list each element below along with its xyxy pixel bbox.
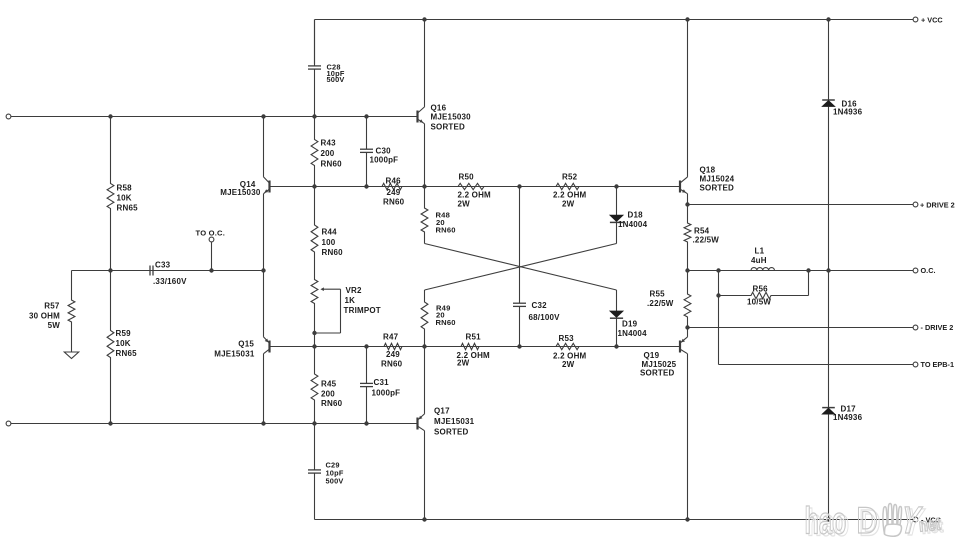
svg-text:TO O.C.: TO O.C. bbox=[196, 229, 226, 238]
svg-text:- DRIVE 2: - DRIVE 2 bbox=[921, 323, 954, 332]
svg-text:RN60: RN60 bbox=[321, 399, 343, 408]
svg-text:249: 249 bbox=[386, 350, 400, 359]
svg-text:SORTED: SORTED bbox=[434, 428, 469, 437]
svg-text:SORTED: SORTED bbox=[431, 123, 466, 132]
svg-text:1N4936: 1N4936 bbox=[833, 413, 863, 422]
svg-text:249: 249 bbox=[387, 188, 401, 197]
svg-text:30 OHM: 30 OHM bbox=[29, 312, 60, 321]
svg-text:4uH: 4uH bbox=[751, 256, 767, 265]
svg-text:RN65: RN65 bbox=[117, 204, 139, 213]
svg-text:R43: R43 bbox=[321, 139, 337, 148]
svg-text:D19: D19 bbox=[622, 320, 638, 329]
svg-text:.33/160V: .33/160V bbox=[153, 277, 187, 286]
svg-text:200: 200 bbox=[321, 149, 335, 158]
svg-text:R56: R56 bbox=[753, 284, 769, 293]
svg-text:Q17: Q17 bbox=[434, 407, 450, 416]
svg-text:68/100V: 68/100V bbox=[529, 313, 561, 322]
svg-text:L1: L1 bbox=[755, 247, 765, 256]
svg-text:2W: 2W bbox=[562, 360, 575, 369]
svg-text:RN60: RN60 bbox=[436, 318, 456, 327]
svg-text:2W: 2W bbox=[457, 359, 470, 368]
svg-text:SORTED: SORTED bbox=[640, 369, 675, 378]
svg-text:R57: R57 bbox=[44, 302, 60, 311]
svg-text:.22/5W: .22/5W bbox=[693, 236, 720, 245]
svg-text:2.2 OHM: 2.2 OHM bbox=[458, 191, 492, 200]
svg-text:D18: D18 bbox=[628, 211, 644, 220]
svg-text:2W: 2W bbox=[562, 200, 575, 209]
svg-text:D: D bbox=[857, 501, 878, 542]
svg-text:SORTED: SORTED bbox=[700, 184, 735, 193]
svg-text:RN60: RN60 bbox=[321, 160, 343, 169]
svg-text:hao: hao bbox=[805, 499, 847, 542]
svg-text:C30: C30 bbox=[376, 147, 392, 156]
svg-text:10/5W: 10/5W bbox=[747, 298, 771, 307]
svg-text:RN60: RN60 bbox=[383, 198, 405, 207]
svg-text:500V: 500V bbox=[327, 75, 345, 84]
svg-text:C33: C33 bbox=[155, 261, 171, 270]
svg-text:RN60: RN60 bbox=[381, 360, 403, 369]
svg-text:2W: 2W bbox=[458, 200, 471, 209]
svg-text:R58: R58 bbox=[117, 184, 133, 193]
svg-text:500V: 500V bbox=[326, 477, 344, 486]
svg-text:R46: R46 bbox=[386, 177, 402, 186]
svg-text:+ DRIVE 2: + DRIVE 2 bbox=[920, 201, 955, 210]
svg-text:Q15: Q15 bbox=[238, 340, 254, 349]
svg-text:TRIMPOT: TRIMPOT bbox=[344, 306, 381, 315]
svg-text:C31: C31 bbox=[374, 378, 390, 387]
svg-text:+ VCC: + VCC bbox=[921, 15, 943, 24]
svg-text:.22/5W: .22/5W bbox=[647, 299, 674, 308]
svg-text:R44: R44 bbox=[322, 228, 338, 237]
svg-text:1000pF: 1000pF bbox=[370, 156, 399, 165]
svg-text:10K: 10K bbox=[117, 194, 132, 203]
svg-text:1K: 1K bbox=[345, 296, 356, 305]
svg-text:Q18: Q18 bbox=[700, 166, 716, 175]
svg-text:VR2: VR2 bbox=[346, 286, 363, 295]
svg-text:Q16: Q16 bbox=[431, 104, 447, 113]
svg-text:RN65: RN65 bbox=[116, 349, 138, 358]
svg-text:MJ15024: MJ15024 bbox=[700, 175, 735, 184]
svg-text:net: net bbox=[918, 514, 942, 536]
svg-text:Q19: Q19 bbox=[644, 351, 660, 360]
svg-text:R52: R52 bbox=[562, 173, 578, 182]
svg-text:MJE15030: MJE15030 bbox=[431, 113, 472, 122]
svg-text:RN60: RN60 bbox=[322, 248, 344, 257]
svg-text:C32: C32 bbox=[532, 301, 548, 310]
svg-text:5W: 5W bbox=[48, 321, 61, 330]
svg-text:R47: R47 bbox=[383, 333, 399, 342]
svg-text:TO EPB-1: TO EPB-1 bbox=[921, 360, 955, 369]
svg-text:R54: R54 bbox=[694, 227, 710, 236]
svg-text:RN60: RN60 bbox=[436, 226, 456, 235]
svg-text:2.2 OHM: 2.2 OHM bbox=[553, 191, 587, 200]
svg-text:1000pF: 1000pF bbox=[372, 389, 401, 398]
svg-text:O.C.: O.C. bbox=[921, 266, 936, 275]
svg-text:MJE15031: MJE15031 bbox=[214, 350, 255, 359]
svg-text:1N4936: 1N4936 bbox=[833, 108, 863, 117]
svg-text:R45: R45 bbox=[321, 380, 337, 389]
svg-text:R55: R55 bbox=[650, 290, 666, 299]
svg-text:MJE15030: MJE15030 bbox=[220, 188, 261, 197]
svg-text:10K: 10K bbox=[116, 339, 131, 348]
svg-text:R51: R51 bbox=[466, 333, 482, 342]
svg-text:1N4004: 1N4004 bbox=[618, 329, 648, 338]
svg-text:1N4004: 1N4004 bbox=[618, 220, 648, 229]
svg-text:MJE15031: MJE15031 bbox=[434, 417, 475, 426]
svg-text:R50: R50 bbox=[459, 173, 475, 182]
svg-text:R59: R59 bbox=[116, 329, 132, 338]
svg-text:R53: R53 bbox=[559, 334, 575, 343]
svg-text:100: 100 bbox=[322, 238, 336, 247]
svg-text:200: 200 bbox=[321, 390, 335, 399]
